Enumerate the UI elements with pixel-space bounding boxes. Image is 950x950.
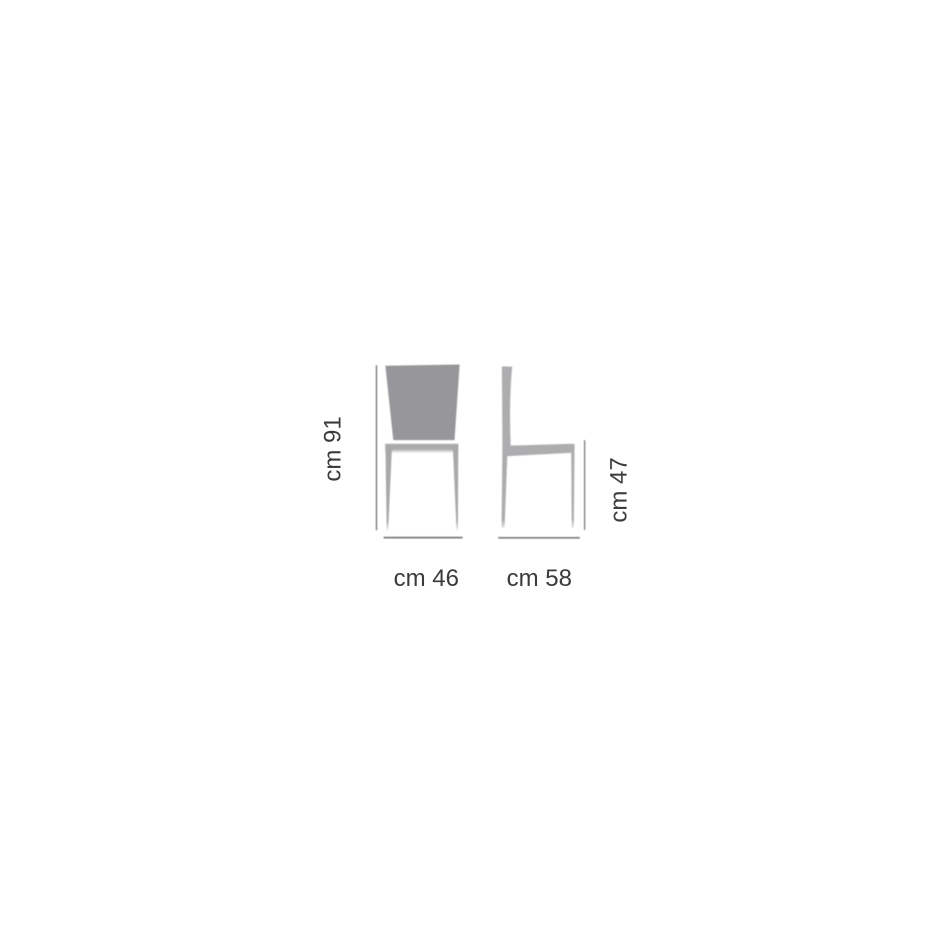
svg-text:cm 58: cm 58 (507, 565, 572, 592)
svg-text:cm 91: cm 91 (320, 416, 347, 481)
svg-text:cm 46: cm 46 (394, 565, 459, 592)
svg-text:cm 47: cm 47 (606, 457, 633, 522)
